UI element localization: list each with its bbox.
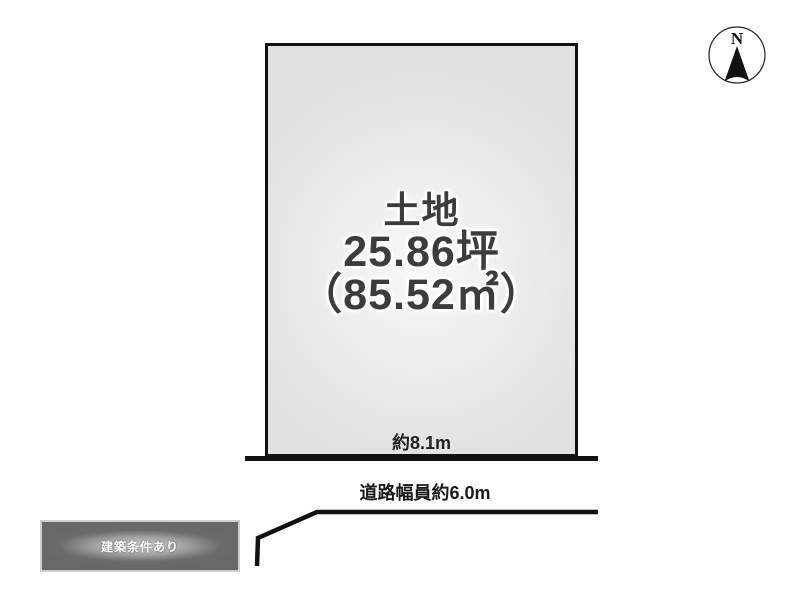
- building-conditions-badge: 建築条件あり: [40, 520, 240, 572]
- site-plan-canvas: N 土地 25.86坪 （85.52㎡） 約8.1m 道路幅員約6.0m 建築条…: [0, 0, 800, 600]
- road-width-label: 道路幅員約6.0m: [265, 479, 585, 505]
- road-outline: [0, 0, 800, 600]
- road-edge-line: [257, 512, 598, 566]
- building-conditions-label: 建築条件あり: [101, 538, 179, 555]
